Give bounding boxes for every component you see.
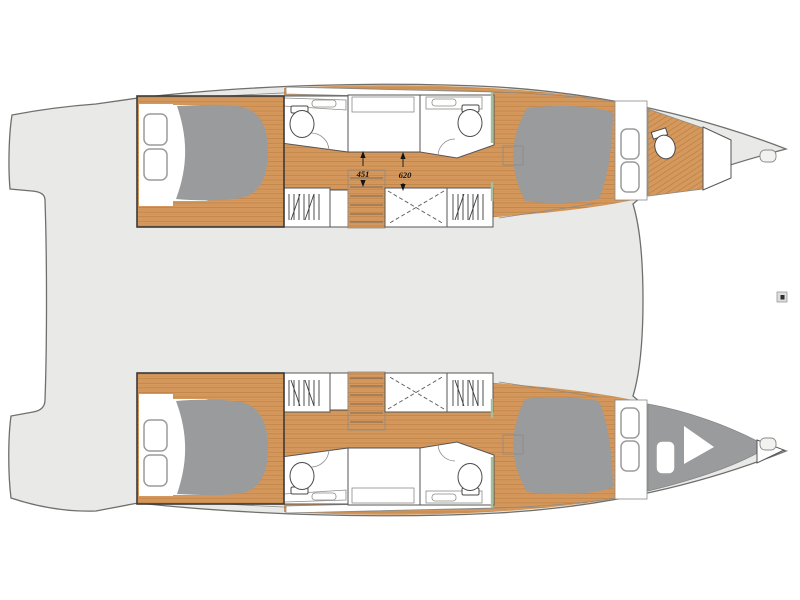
bow-berth-compartment	[648, 404, 784, 491]
aft-head	[281, 96, 348, 152]
hull-interior-starboard	[137, 372, 648, 515]
window-icon	[621, 162, 639, 192]
deck-hatch-icon	[760, 150, 776, 162]
entry-locker	[352, 97, 414, 112]
companionway-entry	[348, 95, 420, 152]
dimension-forward-label: 620	[399, 170, 413, 180]
locker	[330, 190, 348, 227]
toilet-icon	[290, 111, 314, 138]
aft-cabin	[137, 96, 284, 227]
catamaran-floorplan-drawing: 451 620	[0, 0, 800, 600]
toilet-icon	[458, 110, 482, 137]
aft-cabin-berth	[176, 105, 268, 201]
window-icon	[144, 114, 167, 145]
window-icon	[621, 129, 639, 159]
window-icon	[144, 149, 167, 180]
small-marker-icon	[777, 292, 787, 302]
dimension-aft-label: 451	[356, 169, 370, 179]
floorplan-canvas: 451 620	[0, 0, 800, 600]
hanging-locker	[283, 188, 330, 227]
forward-head	[420, 95, 494, 158]
hull-interior-port	[137, 85, 648, 228]
hanging-locker-2	[447, 188, 493, 227]
deck-hatch-icon	[760, 438, 776, 450]
window-icon	[656, 441, 675, 474]
forward-cabin-berth	[513, 106, 613, 203]
